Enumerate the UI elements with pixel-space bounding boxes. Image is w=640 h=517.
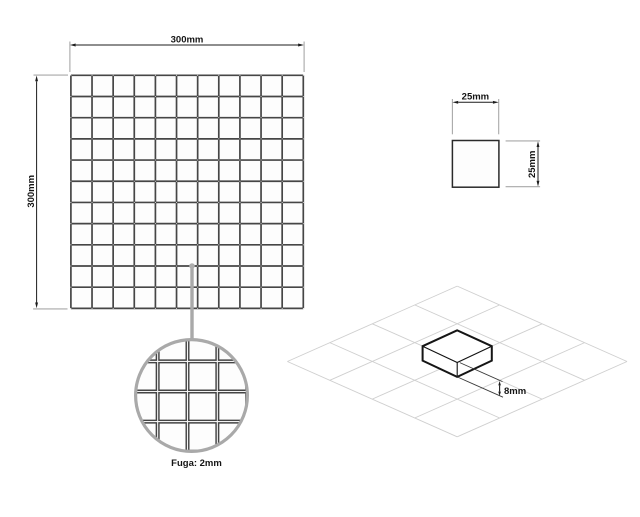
svg-text:300mm: 300mm	[26, 175, 37, 208]
svg-text:25mm: 25mm	[527, 151, 538, 178]
svg-text:8mm: 8mm	[504, 386, 526, 397]
svg-text:25mm: 25mm	[462, 91, 489, 102]
svg-text:300mm: 300mm	[171, 34, 204, 45]
svg-text:Fuga: 2mm: Fuga: 2mm	[171, 458, 222, 469]
